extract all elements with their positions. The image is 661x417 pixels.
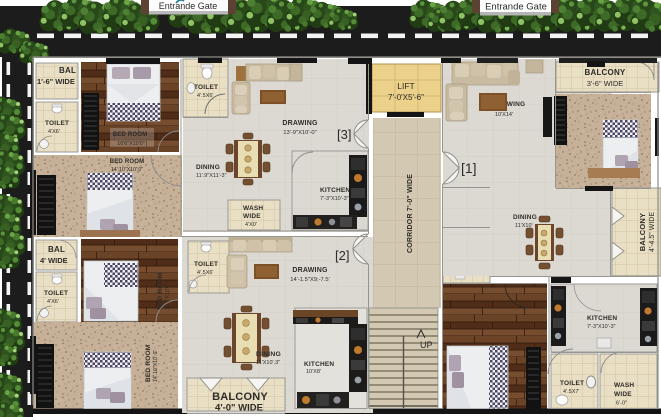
svg-text:14'-1.5"X9;-7.5': 14'-1.5"X9;-7.5' [290, 277, 329, 283]
svg-text:TOILET: TOILET [45, 120, 69, 127]
svg-text:4'X0': 4'X0' [245, 222, 257, 228]
svg-text:TOILET: TOILET [194, 261, 218, 268]
svg-text:4' WIDE: 4' WIDE [40, 256, 68, 265]
svg-text:WIDE: WIDE [614, 391, 632, 398]
svg-text:DINING: DINING [196, 164, 220, 171]
svg-text:BED ROOM: BED ROOM [110, 159, 145, 165]
svg-text:10'6"X10'0": 10'6"X10'0" [117, 141, 145, 147]
svg-text:LIFT: LIFT [397, 81, 414, 91]
svg-text:BED ROOM: BED ROOM [145, 345, 152, 382]
svg-text:TOILET: TOILET [560, 380, 584, 387]
svg-text:4'.5X7': 4'.5X7' [563, 389, 579, 395]
svg-text:BAL: BAL [48, 245, 65, 254]
svg-text:DRAWING: DRAWING [282, 120, 318, 127]
svg-text:[1]: [1] [461, 160, 477, 176]
svg-text:CORRIDOR 7'-0" WIDE: CORRIDOR 7'-0" WIDE [407, 174, 414, 253]
svg-text:TOILET: TOILET [44, 290, 68, 297]
svg-text:BAL: BAL [59, 66, 76, 75]
svg-text:10'X8': 10'X8' [306, 369, 321, 375]
svg-text:WASH: WASH [614, 382, 634, 389]
svg-text:KITCHEN: KITCHEN [587, 315, 617, 322]
svg-text:3'-6" WIDE: 3'-6" WIDE [587, 79, 624, 88]
svg-text:KITCHEN: KITCHEN [304, 361, 334, 368]
svg-text:6'-0": 6'-0" [616, 401, 627, 407]
svg-text:11'X10'.3": 11'X10'.3" [256, 360, 280, 366]
svg-text:10'X14': 10'X14' [495, 112, 513, 118]
svg-text:DINING: DINING [513, 214, 537, 221]
svg-text:KITCHEN: KITCHEN [320, 187, 350, 194]
svg-text:7'-0'X5'-6": 7'-0'X5'-6" [388, 93, 424, 102]
svg-text:10'6"X10'0": 10'6"X10'0" [165, 283, 171, 310]
svg-text:13'-9"X10'-0": 13'-9"X10'-0" [283, 130, 316, 136]
svg-text:4'.5X6': 4'.5X6' [197, 93, 213, 99]
svg-text:BED ROOM: BED ROOM [113, 132, 148, 138]
svg-text:7'-3"X10'-3": 7'-3"X10'-3" [320, 196, 349, 202]
svg-text:[2]: [2] [335, 248, 349, 263]
svg-text:11'.9"X11'-3": 11'.9"X11'-3" [196, 173, 227, 179]
svg-text:1'-6" WIDE: 1'-6" WIDE [37, 77, 75, 86]
svg-text:WASH: WASH [243, 205, 263, 212]
svg-text:4'-4.5" WIDE: 4'-4.5" WIDE [649, 212, 656, 252]
svg-text:BALCONY: BALCONY [585, 68, 626, 77]
svg-text:TOILET: TOILET [194, 84, 218, 91]
svg-text:Entrande Gate: Entrande Gate [485, 2, 547, 13]
svg-text:BALCONY: BALCONY [638, 213, 647, 251]
svg-text:WIDE: WIDE [243, 213, 261, 220]
svg-text:14'.10"X10'.0": 14'.10"X10'.0" [153, 350, 159, 382]
svg-text:UP: UP [420, 340, 433, 350]
svg-text:4'X6': 4'X6' [48, 129, 60, 135]
svg-text:DRAWING: DRAWING [292, 267, 328, 274]
svg-text:4'X6': 4'X6' [47, 299, 59, 305]
svg-text:BALCONY: BALCONY [212, 391, 268, 403]
svg-text:Entrande Gate: Entrande Gate [159, 1, 218, 11]
svg-text:WING: WING [507, 101, 526, 108]
svg-text:7'-3"X10'-3": 7'-3"X10'-3" [587, 324, 616, 330]
svg-text:14'.10"X10'.0": 14'.10"X10'.0" [111, 167, 143, 173]
svg-text:4'-0" WIDE: 4'-0" WIDE [215, 403, 263, 414]
svg-text:DINING: DINING [256, 351, 281, 358]
svg-text:[3]: [3] [337, 127, 351, 142]
svg-text:BED ROOM: BED ROOM [157, 273, 164, 310]
